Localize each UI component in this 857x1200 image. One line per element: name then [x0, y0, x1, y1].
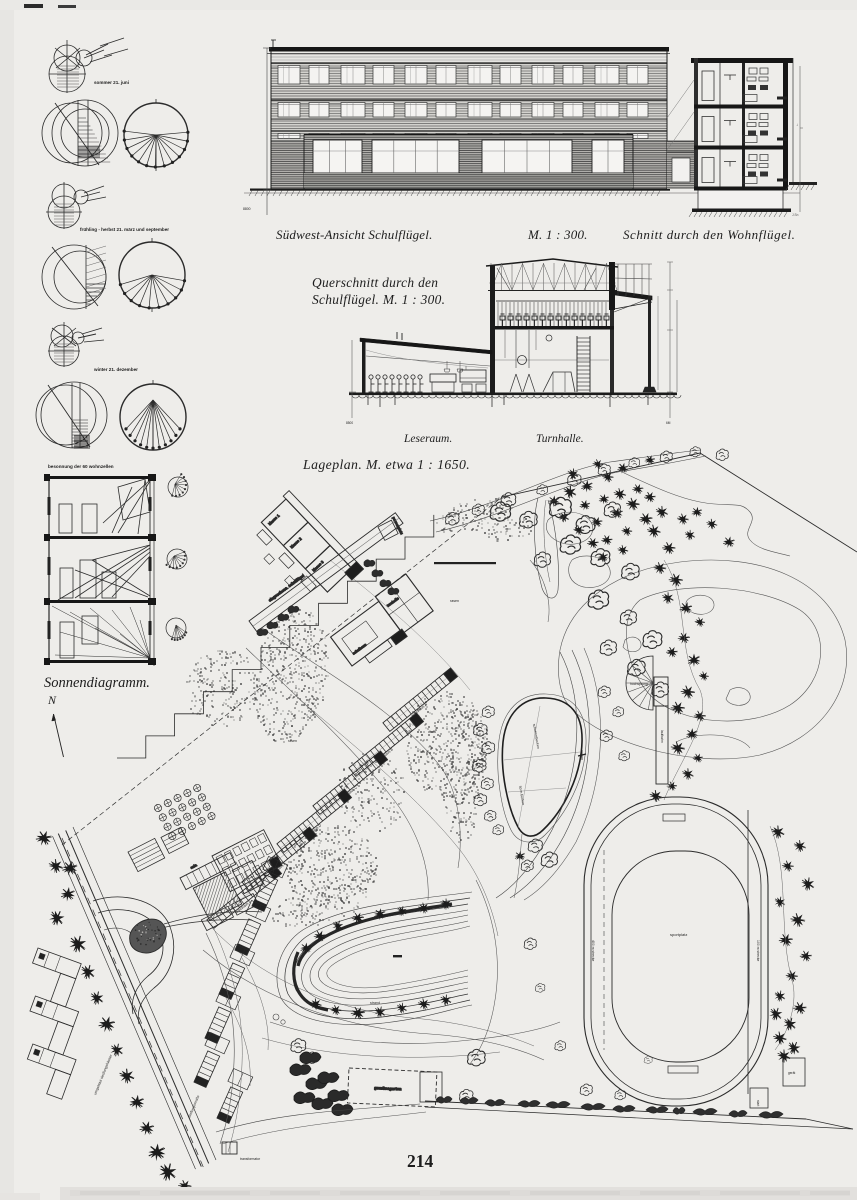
svg-text:Sonnendiagramm.: Sonnendiagramm. — [44, 675, 150, 691]
svg-text:Schnitt durch den Wohnflügel.: Schnitt durch den Wohnflügel. — [623, 227, 795, 242]
svg-text:Turnhalle.: Turnhalle. — [536, 433, 584, 445]
svg-text:start: start — [756, 1100, 760, 1106]
svg-text:rasen: rasen — [450, 599, 459, 603]
svg-text:transformator: transformator — [240, 1157, 261, 1161]
svg-text:sommer 21. juni: sommer 21. juni — [94, 80, 129, 85]
svg-text:rasen: rasen — [288, 739, 297, 743]
svg-text:100 m strecke: 100 m strecke — [756, 940, 760, 961]
svg-text:hochsprung: hochsprung — [630, 682, 648, 686]
svg-text:M. 1 : 300.: M. 1 : 300. — [527, 227, 588, 242]
svg-text:J.Sn: J.Sn — [792, 213, 799, 217]
svg-text:6M: 6M — [666, 421, 671, 425]
svg-text:laufbahn: laufbahn — [660, 730, 664, 743]
svg-text:besonnung der 60 wohnzellen: besonnung der 60 wohnzellen — [48, 464, 114, 469]
svg-text:gerät: gerät — [788, 1071, 795, 1075]
svg-text:8500: 8500 — [346, 421, 353, 425]
svg-text:N: N — [47, 693, 57, 707]
svg-text:Schulflügel. M. 1 : 300.: Schulflügel. M. 1 : 300. — [312, 292, 445, 307]
svg-text:frühling - herbst 21. märz u: frühling - herbst 21. märz und september — [80, 227, 169, 232]
svg-text:Leseraum.: Leseraum. — [403, 433, 452, 445]
svg-text:↓: ↓ — [796, 122, 798, 127]
svg-text:sportplatz: sportplatz — [670, 932, 687, 937]
svg-text:strand: strand — [370, 1001, 380, 1005]
svg-text:8800: 8800 — [243, 207, 251, 211]
svg-text:400 m strecke: 400 m strecke — [591, 940, 595, 961]
svg-text:winter 21. dezember: winter 21. dezember — [93, 367, 138, 372]
svg-text:Südwest-Ansicht Schulflügel.: Südwest-Ansicht Schulflügel. — [276, 227, 433, 242]
svg-text:Lageplan. M. etwa 1 : 1650.: Lageplan. M. etwa 1 : 1650. — [302, 457, 470, 472]
svg-text:214: 214 — [407, 1151, 434, 1171]
svg-text:Querschnitt durch den: Querschnitt durch den — [312, 275, 438, 290]
